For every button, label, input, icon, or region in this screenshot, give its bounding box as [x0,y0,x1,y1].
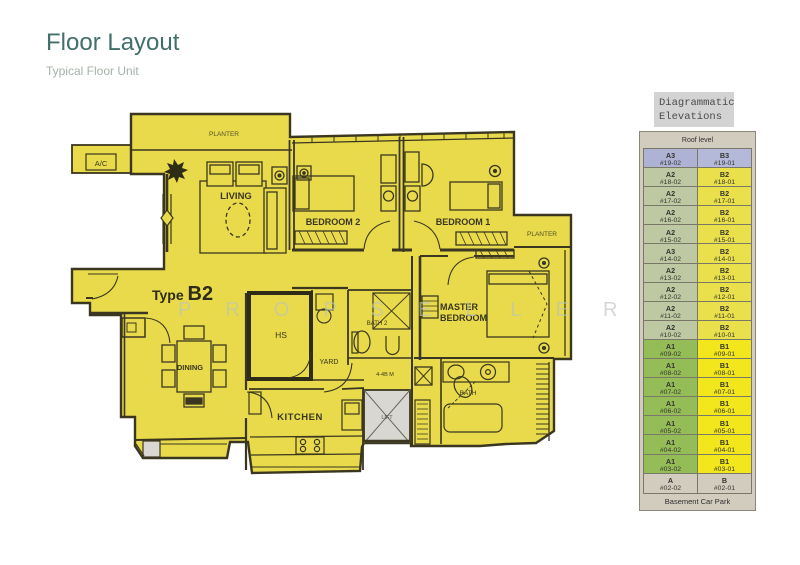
svg-text:A/C: A/C [95,159,108,168]
svg-text:BEDROOM 2: BEDROOM 2 [306,217,361,227]
svg-text:PLANTER: PLANTER [209,131,239,138]
svg-text:LIFT: LIFT [381,415,393,421]
svg-text:DINING: DINING [177,363,203,372]
svg-text:HS: HS [275,330,287,340]
svg-text:KITCHEN: KITCHEN [277,412,323,423]
svg-text:4-4B M: 4-4B M [376,372,394,378]
svg-text:PLANTER: PLANTER [527,231,557,238]
svg-text:BATH: BATH [460,390,477,397]
svg-text:YARD: YARD [320,359,339,366]
svg-text:BEDROOM 1: BEDROOM 1 [436,217,491,227]
svg-text:LIVING: LIVING [220,191,252,202]
